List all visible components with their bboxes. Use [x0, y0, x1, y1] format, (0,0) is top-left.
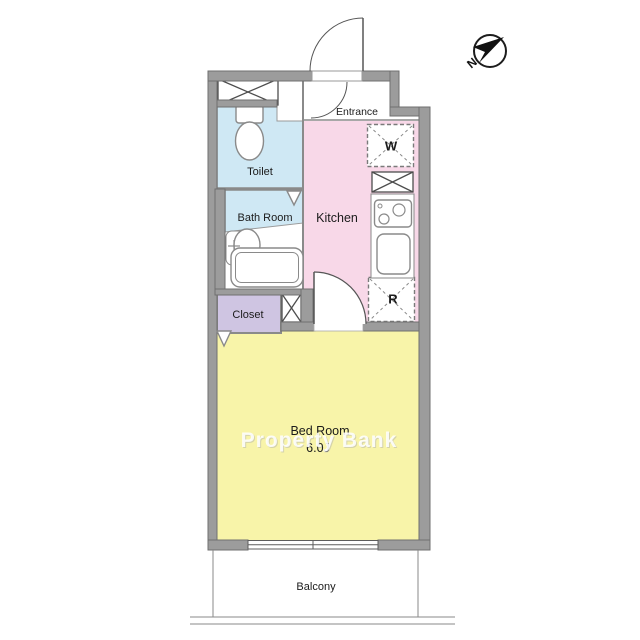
toilet-label: Toilet	[247, 166, 273, 178]
kitchen-sink	[377, 234, 410, 274]
wall-under-top-storage	[217, 100, 277, 107]
entrance-label: Entrance	[336, 106, 378, 118]
wall-left	[208, 71, 217, 550]
balcony-label: Balcony	[296, 581, 335, 593]
wall-right	[419, 107, 430, 550]
refrigerator-label: R	[388, 292, 397, 307]
wall-top-left	[208, 71, 312, 81]
washer-label: W	[385, 139, 397, 154]
kitchen-label: Kitchen	[316, 211, 358, 225]
wall-entrance-right	[390, 71, 399, 109]
wall-kitchen-bedroom-right	[363, 322, 419, 331]
compass	[473, 35, 506, 67]
wall-bath-left	[215, 189, 225, 290]
floor-plan-image: Entrance Toilet Bath Room Kitchen Closet…	[0, 0, 640, 640]
bathroom-label: Bath Room	[237, 212, 292, 224]
floor-plan-drawing	[0, 0, 640, 640]
wall-kitchen-bedroom-left	[281, 322, 315, 331]
closet-label: Closet	[232, 309, 263, 321]
entrance-doorway-gap	[312, 71, 362, 81]
entrance-door-swing-arc	[310, 18, 363, 71]
watermark: Property Bank	[241, 429, 398, 453]
toilet-tank	[236, 105, 263, 123]
toilet-corner-notch	[277, 81, 303, 121]
toilet-bowl	[236, 122, 264, 160]
wall-closet-top	[215, 289, 313, 295]
bathtub-outer	[231, 248, 303, 287]
wall-bottom-left	[208, 540, 248, 550]
wall-bottom-right	[378, 540, 430, 550]
bedroom-window	[248, 541, 378, 550]
kitchen-counter	[371, 194, 414, 278]
toilet-fixture	[236, 105, 264, 160]
